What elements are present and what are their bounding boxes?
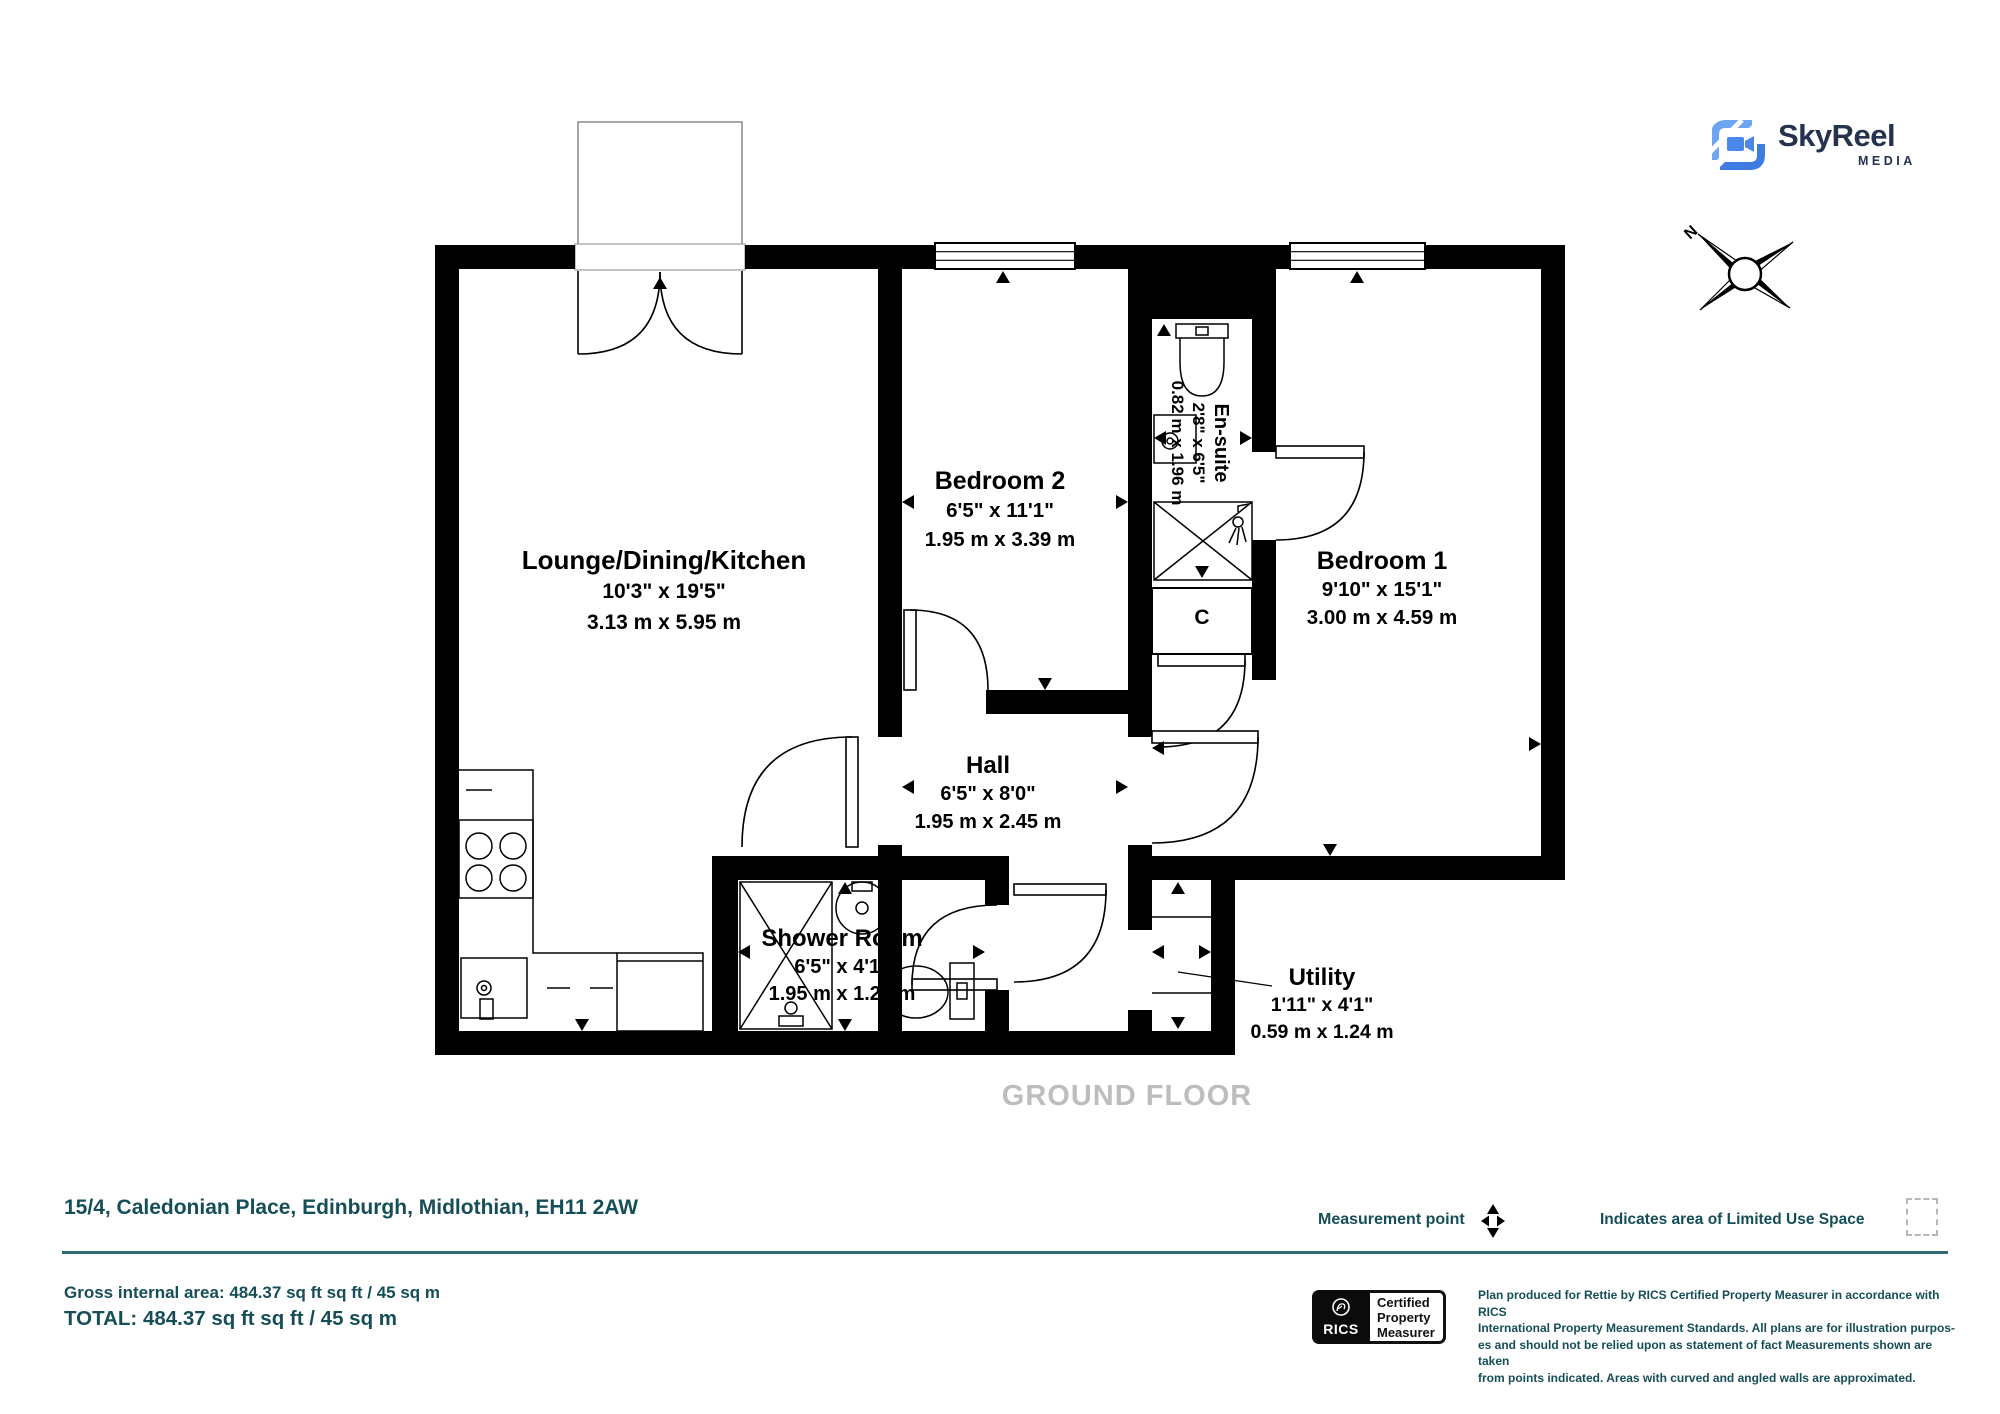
gross-area-text: Gross internal area: 484.37 sq ft sq ft …: [64, 1283, 440, 1303]
door-lounge: [742, 737, 858, 847]
room-name: Shower Room: [761, 924, 922, 954]
balcony: [575, 122, 745, 270]
room-dims-imperial: 9'10" x 15'1": [1307, 576, 1457, 604]
room-label-ensuite: En-suite 2'8" x 6'5" 0.82 m x 1.96 m: [1167, 381, 1233, 506]
door-entrance: [1014, 884, 1106, 982]
hob-icon: [459, 820, 533, 898]
rics-line: Measurer: [1377, 1325, 1435, 1340]
room-name: Lounge/Dining/Kitchen: [522, 544, 807, 576]
room-name: Utility: [1250, 964, 1393, 992]
rics-text-box: Certified Property Measurer: [1370, 1290, 1446, 1344]
disclaimer-line: from points indicated. Areas with curved…: [1478, 1370, 1958, 1387]
room-dims-metric: 0.82 m x 1.96 m: [1167, 381, 1188, 506]
room-label-shower-room: Shower Room 6'5" x 4'1" 1.95 m x 1.24 m: [761, 924, 922, 1008]
kitchen-counter: [459, 770, 703, 1031]
address: 15/4, Caledonian Place, Edinburgh, Midlo…: [64, 1196, 638, 1220]
measurement-arrows: [447, 271, 1541, 1031]
disclaimer-line: International Property Measurement Stand…: [1478, 1320, 1958, 1337]
room-name: En-suite: [1209, 381, 1233, 506]
room-dims-metric: 1.95 m x 1.24 m: [761, 981, 922, 1008]
door-shower-room: [912, 905, 997, 990]
footer-divider: [62, 1251, 1948, 1254]
room-dims-metric: 1.95 m x 3.39 m: [925, 525, 1075, 554]
measurement-point-icon: [1478, 1202, 1508, 1240]
room-dims-metric: 3.00 m x 4.59 m: [1307, 604, 1457, 632]
room-dims-imperial: 1'11" x 4'1": [1250, 992, 1393, 1019]
rics-org-label: RICS: [1323, 1321, 1358, 1337]
logo-sub: MEDIA: [1858, 154, 1916, 168]
compass-icon: N: [1681, 223, 1793, 310]
room-label-utility: Utility 1'11" x 4'1" 0.59 m x 1.24 m: [1250, 964, 1393, 1046]
window-bedroom2: [935, 243, 1075, 269]
room-label-hall: Hall 6'5" x 8'0" 1.95 m x 2.45 m: [915, 752, 1062, 836]
room-name: Bedroom 2: [925, 466, 1075, 496]
room-label-lounge: Lounge/Dining/Kitchen 10'3" x 19'5" 3.13…: [522, 544, 807, 638]
room-dims-imperial: 6'5" x 8'0": [915, 780, 1062, 808]
disclaimer-line: es and should not be relied upon as stat…: [1478, 1337, 1958, 1370]
floor-title: GROUND FLOOR: [1002, 1080, 1252, 1113]
logo-name: SkyReel: [1778, 118, 1895, 154]
kitchen-sink-icon: [461, 958, 527, 1019]
limited-use-swatch: [1906, 1198, 1938, 1236]
room-name: Bedroom 1: [1307, 546, 1457, 576]
limited-use-label: Indicates area of Limited Use Space: [1600, 1211, 1864, 1229]
room-label-bedroom2: Bedroom 2 6'5" x 11'1" 1.95 m x 3.39 m: [925, 466, 1075, 554]
room-dims-imperial: 6'5" x 4'1": [761, 954, 922, 981]
disclaimer-line: Plan produced for Rettie by RICS Certifi…: [1478, 1287, 1958, 1320]
rics-lion-icon: [1330, 1297, 1352, 1319]
room-dims-metric: 1.95 m x 2.45 m: [915, 808, 1062, 836]
door-bedroom1: [1152, 731, 1258, 843]
total-area-text: TOTAL: 484.37 sq ft sq ft / 45 sq m: [64, 1307, 397, 1331]
room-dims-metric: 3.13 m x 5.95 m: [522, 607, 807, 638]
rics-line: Certified: [1377, 1295, 1435, 1310]
compass-north-label: N: [1681, 223, 1701, 243]
window-bedroom1: [1290, 243, 1425, 269]
room-dims-imperial: 6'5" x 11'1": [925, 496, 1075, 525]
room-dims-metric: 0.59 m x 1.24 m: [1250, 1019, 1393, 1046]
rics-logo: RICS: [1312, 1290, 1370, 1344]
rics-badge: RICS Certified Property Measurer: [1312, 1290, 1446, 1344]
room-label-bedroom1: Bedroom 1 9'10" x 15'1" 3.00 m x 4.59 m: [1307, 546, 1457, 632]
room-dims-imperial: 10'3" x 19'5": [522, 576, 807, 607]
door-bedroom2: [904, 610, 988, 690]
measurement-point-label: Measurement point: [1318, 1211, 1465, 1229]
room-dims-imperial: 2'8" x 6'5": [1188, 381, 1209, 506]
skyreel-logo-icon: [1712, 120, 1766, 172]
disclaimer: Plan produced for Rettie by RICS Certifi…: [1478, 1287, 1958, 1386]
door-ensuite: [1276, 446, 1364, 540]
room-name: Hall: [915, 752, 1062, 780]
cupboard-label: C: [1194, 606, 1209, 630]
rics-line: Property: [1377, 1310, 1435, 1325]
walls: [435, 245, 1565, 1055]
